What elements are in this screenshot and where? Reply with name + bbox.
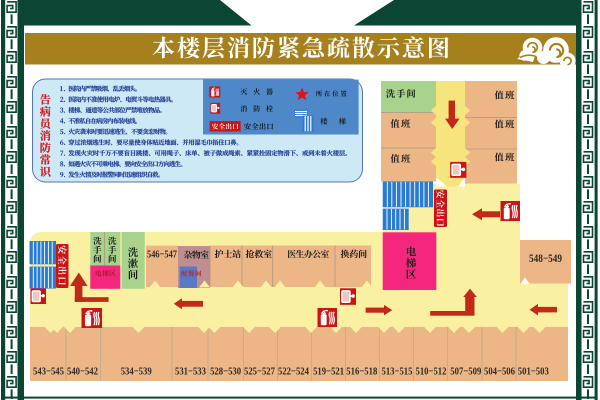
- svg-text:546−547: 546−547: [147, 249, 177, 261]
- svg-text:501−503: 501−503: [518, 365, 549, 377]
- svg-text:507−509: 507−509: [450, 365, 481, 377]
- svg-text:531−533: 531−533: [175, 365, 206, 377]
- svg-text:528−530: 528−530: [210, 365, 241, 377]
- svg-text:504−506: 504−506: [484, 365, 515, 377]
- svg-text:510−512: 510−512: [416, 365, 447, 377]
- svg-text:522−524: 522−524: [278, 365, 309, 377]
- svg-text:513−515: 513−515: [382, 365, 413, 377]
- svg-text:519−521: 519−521: [313, 365, 344, 377]
- svg-text:548−549: 548−549: [529, 253, 562, 265]
- svg-text:525−527: 525−527: [244, 365, 275, 377]
- svg-text:534−539: 534−539: [121, 365, 152, 377]
- svg-text:543−545: 543−545: [33, 365, 64, 377]
- svg-text:540−542: 540−542: [67, 365, 98, 377]
- svg-text:516−518: 516−518: [346, 365, 377, 377]
